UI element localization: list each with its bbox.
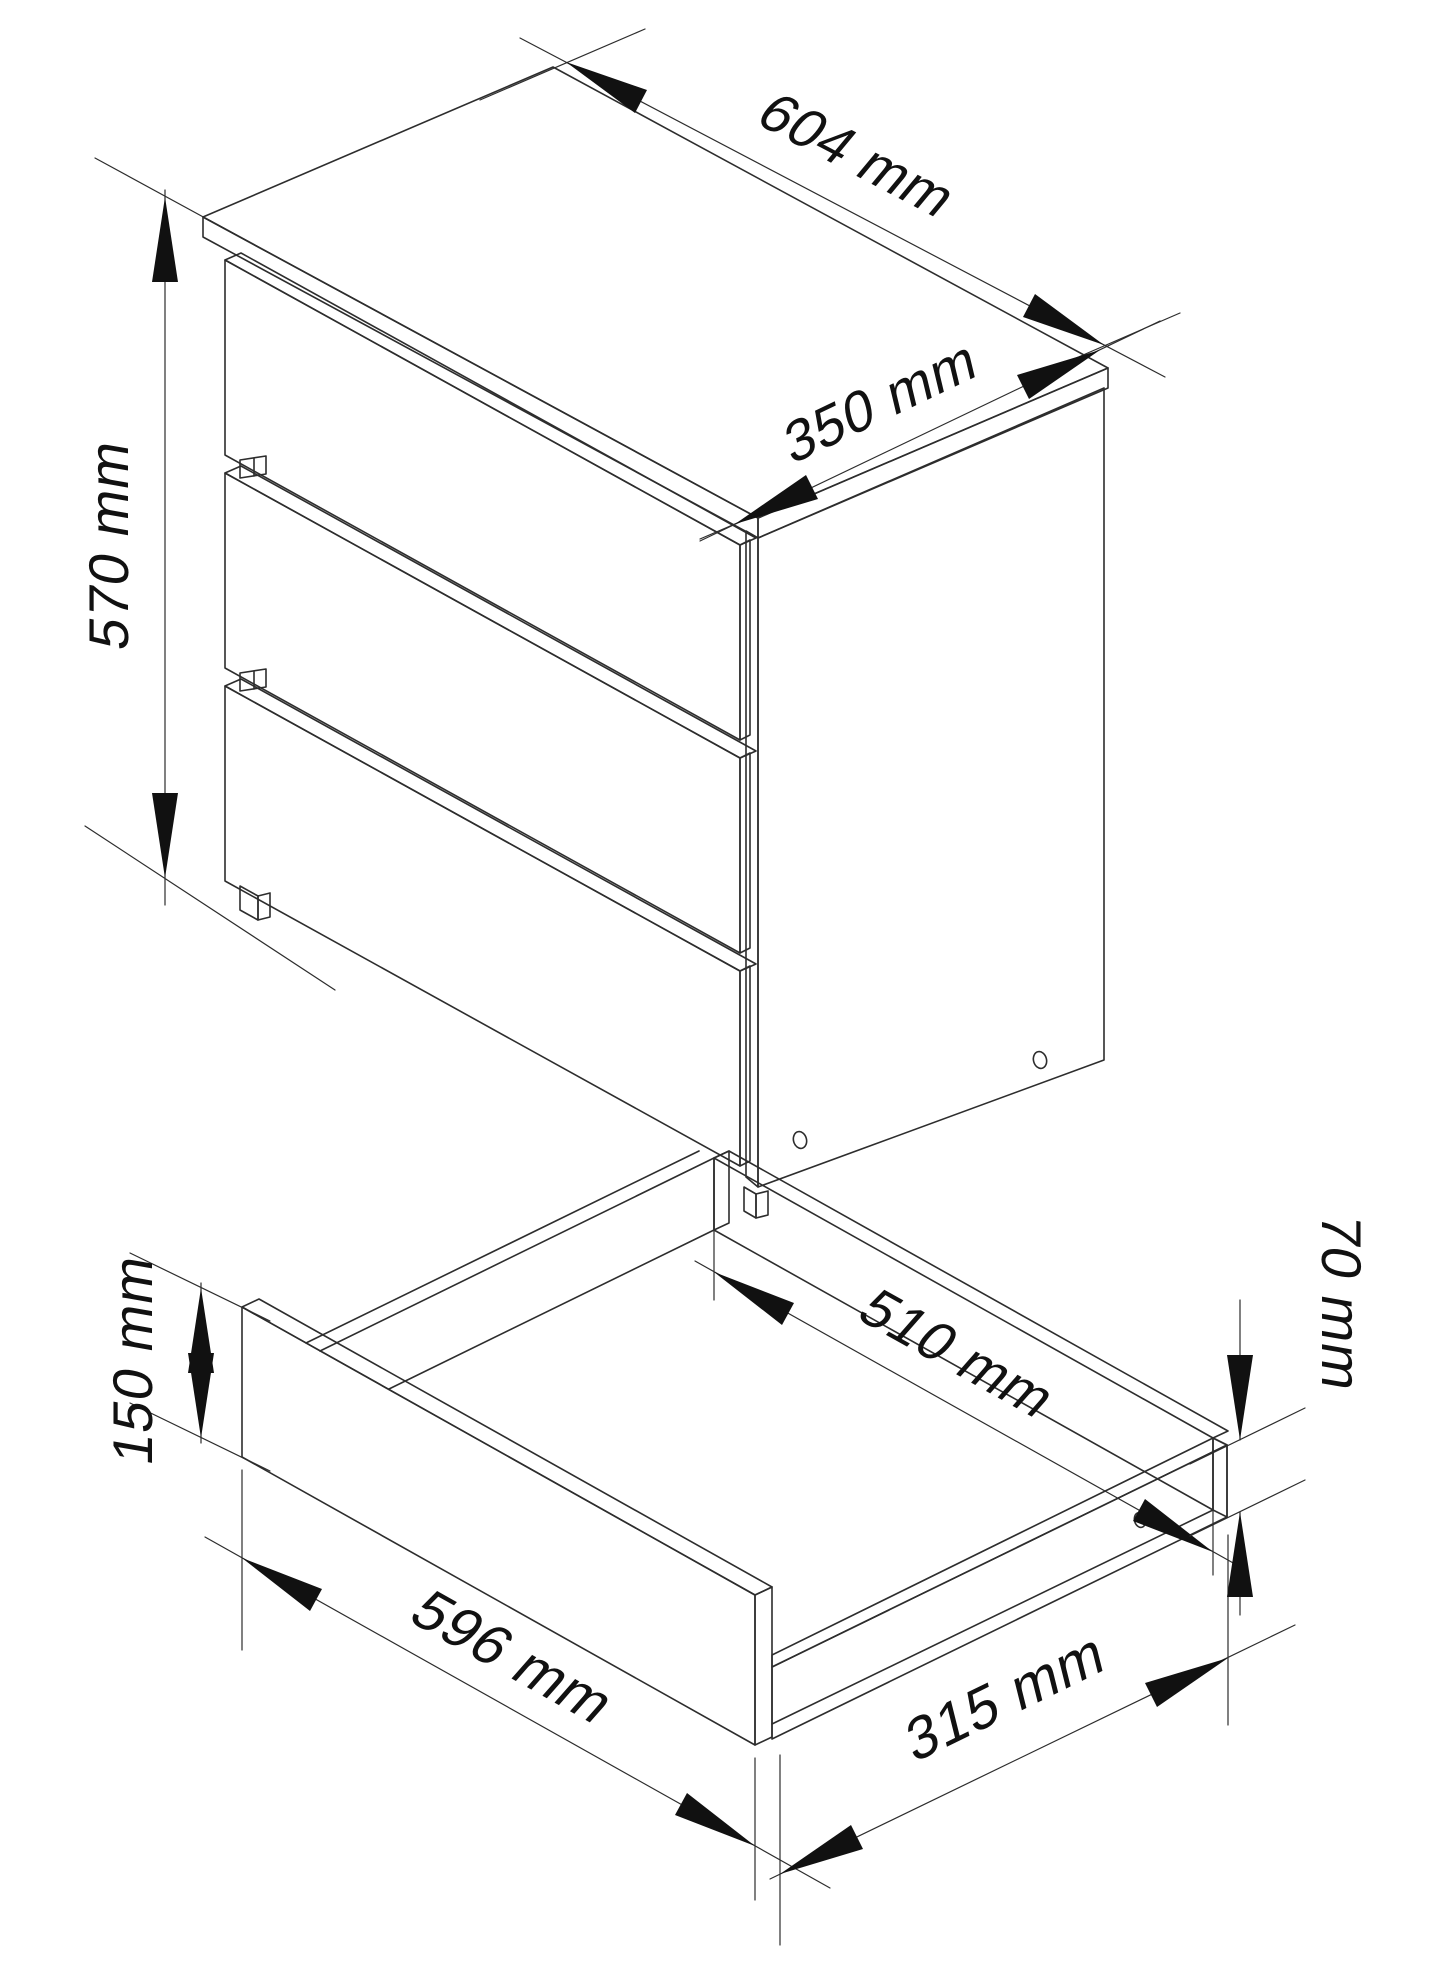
dimension-label-drawer-side-height: 70 mm xyxy=(1310,1210,1373,1397)
cabinet-side-panel-front-edge xyxy=(746,531,758,1187)
cabinet-side-panel xyxy=(758,388,1104,1187)
arrowhead xyxy=(1227,1355,1253,1440)
dimension-label-cabinet-height: 570 mm xyxy=(77,435,140,654)
dimension-label-cabinet-width: 604 mm xyxy=(745,82,970,228)
arrowhead xyxy=(1023,294,1104,345)
extension-line xyxy=(1190,1408,1305,1464)
arrowhead xyxy=(1145,1658,1228,1707)
drawer-left-rail-inner-bottom xyxy=(389,1230,714,1389)
drawer-front-panel-end xyxy=(755,1587,772,1745)
drawer-front-panel-top xyxy=(242,1299,772,1595)
cabinet-foot-right xyxy=(744,1187,756,1218)
arrowhead xyxy=(566,62,647,113)
arrowhead xyxy=(188,1353,214,1438)
drawer-left-rail-inner-top xyxy=(320,1158,714,1351)
arrowhead xyxy=(152,197,178,282)
drawer-left-rail-outer-top xyxy=(306,1151,699,1343)
arrowhead xyxy=(780,1825,863,1874)
technical-drawing: 570 mm 604 mm 350 mm xyxy=(0,0,1445,1982)
arrowhead xyxy=(1227,1512,1253,1597)
dimension-label-drawer-front-width: 596 mm xyxy=(397,1580,628,1735)
dimension-label-drawer-inner-depth: 315 mm xyxy=(900,1618,1110,1776)
dimension-label-drawer-inner-width: 510 mm xyxy=(846,1278,1070,1428)
drawer-front-3 xyxy=(225,686,740,1166)
drawer-front-2-end xyxy=(740,753,750,953)
drawer-front-1-end xyxy=(740,540,750,740)
cabinet-figure: 570 mm 604 mm 350 mm xyxy=(77,29,1180,1218)
arrowhead xyxy=(242,1558,322,1611)
cabinet-top-face xyxy=(203,67,1108,518)
drawer-front-3-end xyxy=(740,966,750,1166)
side-panel-screw-hole xyxy=(792,1130,809,1150)
cabinet-foot-left-side xyxy=(258,893,270,920)
drawer-right-rail-top xyxy=(772,1438,1227,1667)
drawing-page: 570 mm 604 mm 350 mm xyxy=(0,0,1445,1982)
arrowhead xyxy=(1017,350,1100,399)
side-panel-screw-hole xyxy=(1032,1050,1049,1070)
cabinet-foot-right-side xyxy=(756,1191,768,1218)
drawer-figure: 150 mm 510 mm 596 mm 315 mm 70 mm xyxy=(101,1151,1372,1945)
arrowhead xyxy=(152,793,178,878)
arrowhead xyxy=(675,1793,755,1846)
dimension-label-drawer-front-height: 150 mm xyxy=(101,1250,164,1469)
cabinet-top-front-edge xyxy=(203,217,758,538)
extension-line xyxy=(85,826,335,990)
extension-line xyxy=(1190,1480,1305,1536)
arrowhead xyxy=(714,1272,794,1325)
